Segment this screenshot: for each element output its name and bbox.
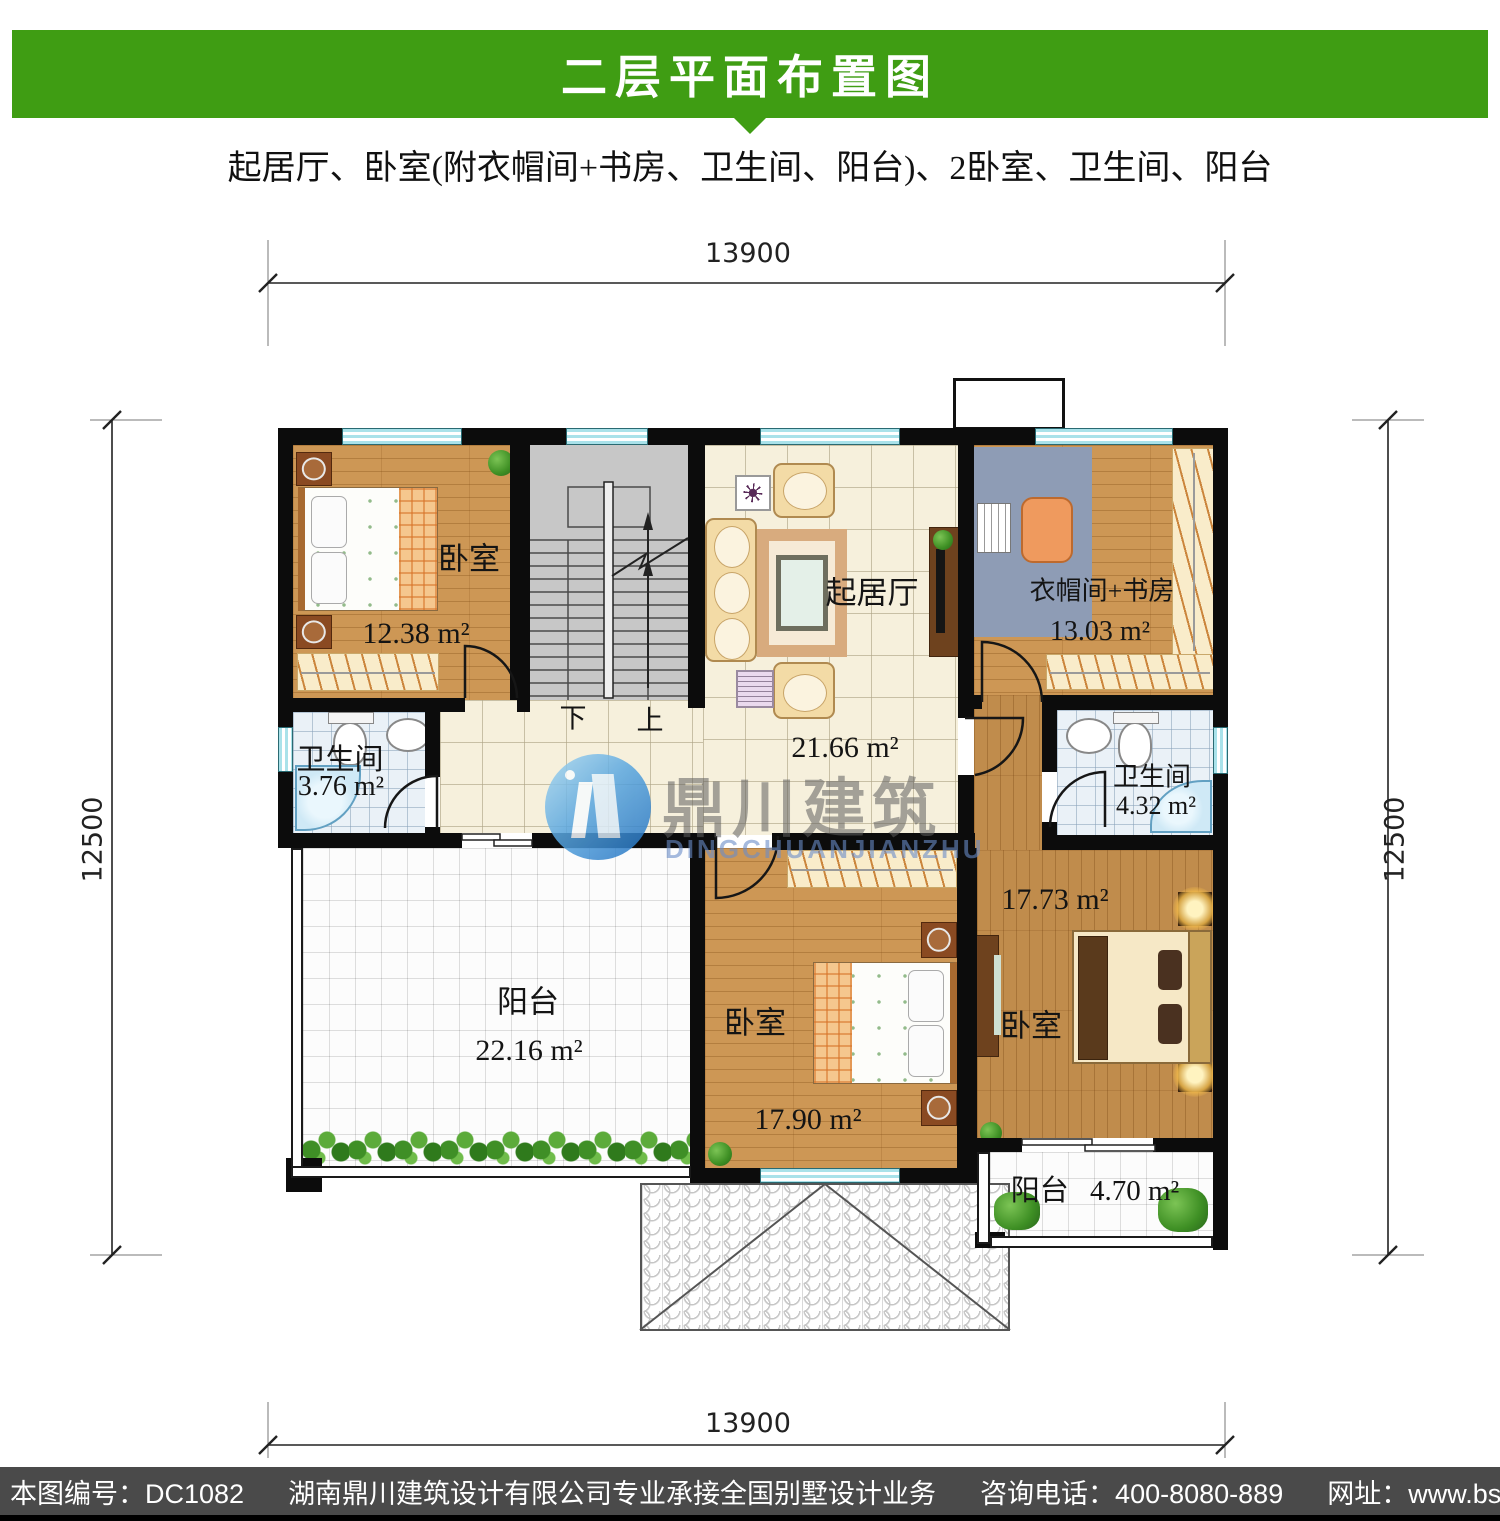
wall (900, 1168, 977, 1183)
pillow (311, 496, 347, 548)
title-banner: 二层平面布置图 (12, 30, 1488, 118)
pillow (908, 1025, 944, 1077)
room-label: 衣帽间+书房 (1030, 571, 1175, 608)
wall (1042, 695, 1213, 710)
wall (974, 695, 982, 709)
desk-chair (1021, 497, 1073, 563)
room-area: 21.66 m² (791, 731, 898, 765)
footer-phone: 咨询电话：400-8080-889 (980, 1472, 1283, 1511)
bed-bench (1078, 936, 1108, 1060)
toilet-tank (328, 712, 374, 724)
staircase-floor (530, 445, 688, 700)
nightstand (921, 922, 957, 958)
balcony-parapet (977, 1152, 990, 1244)
window (760, 428, 900, 445)
roof (640, 1183, 1010, 1331)
wardrobe (1172, 448, 1214, 656)
tv (936, 549, 945, 633)
balcony-parapet (990, 1236, 1213, 1248)
dim-top: 13900 (705, 238, 791, 269)
pillow (908, 970, 944, 1022)
room-area: 12.38 m² (362, 617, 469, 651)
room-label: 卧室 (1000, 1001, 1062, 1046)
wall (510, 445, 530, 700)
wall (958, 775, 974, 850)
window (1213, 727, 1228, 774)
wall (1153, 1138, 1228, 1152)
balcony-small-label: 阳台 4.70 m² (1011, 1167, 1180, 1209)
window (760, 1168, 900, 1183)
wall (425, 827, 440, 848)
footer-plan-no: 本图编号：DC1082 (10, 1472, 244, 1511)
banner-pointer-icon (734, 118, 766, 134)
footer-website[interactable]: 网址：www.bstzcs.com (1327, 1472, 1500, 1511)
room-label: 卧室 (438, 534, 500, 579)
room-label: 阳台 (1011, 1175, 1069, 1207)
wall (690, 848, 705, 1183)
double-bed (298, 487, 438, 611)
wall (1213, 428, 1228, 1250)
stairs-up-label: 上 (637, 699, 664, 738)
sink (386, 718, 430, 752)
pillow-dark (1158, 1004, 1182, 1044)
wall (1042, 835, 1213, 850)
dim-left: 12500 (77, 797, 108, 883)
headboard (1188, 932, 1210, 1062)
chimney (953, 378, 1065, 430)
luxury-bed (1072, 930, 1212, 1064)
wall (977, 1138, 1022, 1152)
plant (933, 530, 953, 550)
wall-lamp (1178, 892, 1212, 926)
wall (688, 445, 705, 708)
wall (278, 833, 440, 848)
wardrobe (787, 850, 957, 888)
armchair-cushion (783, 674, 827, 712)
nightstand (921, 1090, 957, 1126)
armchair-cushion (783, 472, 827, 510)
pillow-dark (1158, 950, 1182, 990)
window (566, 428, 648, 445)
pillow (311, 552, 347, 604)
window (342, 428, 462, 445)
balcony-greenery (303, 1122, 690, 1166)
page-title: 二层平面布置图 (561, 41, 939, 107)
blanket-plaid (399, 488, 437, 610)
sofa-cushion (714, 618, 750, 660)
room-area: 3.76 m² (298, 771, 384, 803)
wardrobe (297, 653, 439, 691)
window (278, 727, 293, 772)
nightstand (296, 452, 332, 486)
armchair (773, 662, 835, 719)
blanket-plaid (814, 963, 852, 1083)
room-label: 起居厅 (826, 568, 919, 613)
room-label: 卧室 (724, 998, 786, 1043)
wall (278, 428, 293, 848)
wall (958, 445, 974, 718)
toilet-tank (1113, 712, 1159, 724)
footer-bar: 本图编号：DC1082 湖南鼎川建筑设计有限公司专业承接全国别墅设计业务 咨询电… (0, 1467, 1500, 1521)
room-area: 4.70 m² (1090, 1175, 1179, 1207)
wall (772, 833, 975, 850)
balcony-parapet (291, 848, 303, 1170)
wall (425, 712, 440, 777)
wall (440, 833, 462, 848)
page-subtitle: 起居厅、卧室(附衣帽间+书房、卫生间、阳台)、2卧室、卫生间、阳台 (0, 140, 1500, 189)
wall (517, 698, 530, 712)
floor-plan-page: 二层平面布置图 起居厅、卧室(附衣帽间+书房、卫生间、阳台)、2卧室、卫生间、阳… (0, 0, 1500, 1521)
nightstand (296, 615, 332, 649)
wardrobe (1046, 654, 1214, 690)
dim-right: 12500 (1379, 797, 1410, 883)
footer-company: 湖南鼎川建筑设计有限公司专业承接全国别墅设计业务 (288, 1472, 936, 1511)
wall (532, 833, 705, 848)
window (1035, 428, 1173, 445)
dim-bottom: 13900 (705, 1408, 791, 1439)
room-label: 卫生间 (1113, 757, 1191, 794)
sofa (705, 518, 757, 662)
corridor-floor (974, 695, 1042, 850)
flower-art (735, 475, 771, 511)
room-label: 阳台 (497, 977, 559, 1022)
wall (278, 698, 465, 712)
balcony-parapet (291, 1166, 691, 1178)
wall (957, 848, 977, 1183)
plant (708, 1142, 732, 1166)
room-area: 17.90 m² (754, 1103, 861, 1137)
coffee-table (776, 555, 828, 631)
room-area: 13.03 m² (1050, 616, 1150, 648)
room-area: 22.16 m² (475, 1034, 582, 1068)
double-bed (813, 962, 957, 1084)
room-area: 4.32 m² (1116, 791, 1196, 821)
stairs-down-label: 下 (560, 697, 587, 736)
room-area: 17.73 m² (1001, 883, 1108, 917)
wall (705, 1168, 760, 1183)
sofa-cushion (714, 526, 750, 568)
bookshelf (977, 503, 1011, 553)
sofa-cushion (714, 572, 750, 614)
wall (1042, 710, 1057, 772)
ac-unit (736, 670, 774, 708)
sink (1066, 718, 1112, 754)
armchair (773, 463, 835, 518)
